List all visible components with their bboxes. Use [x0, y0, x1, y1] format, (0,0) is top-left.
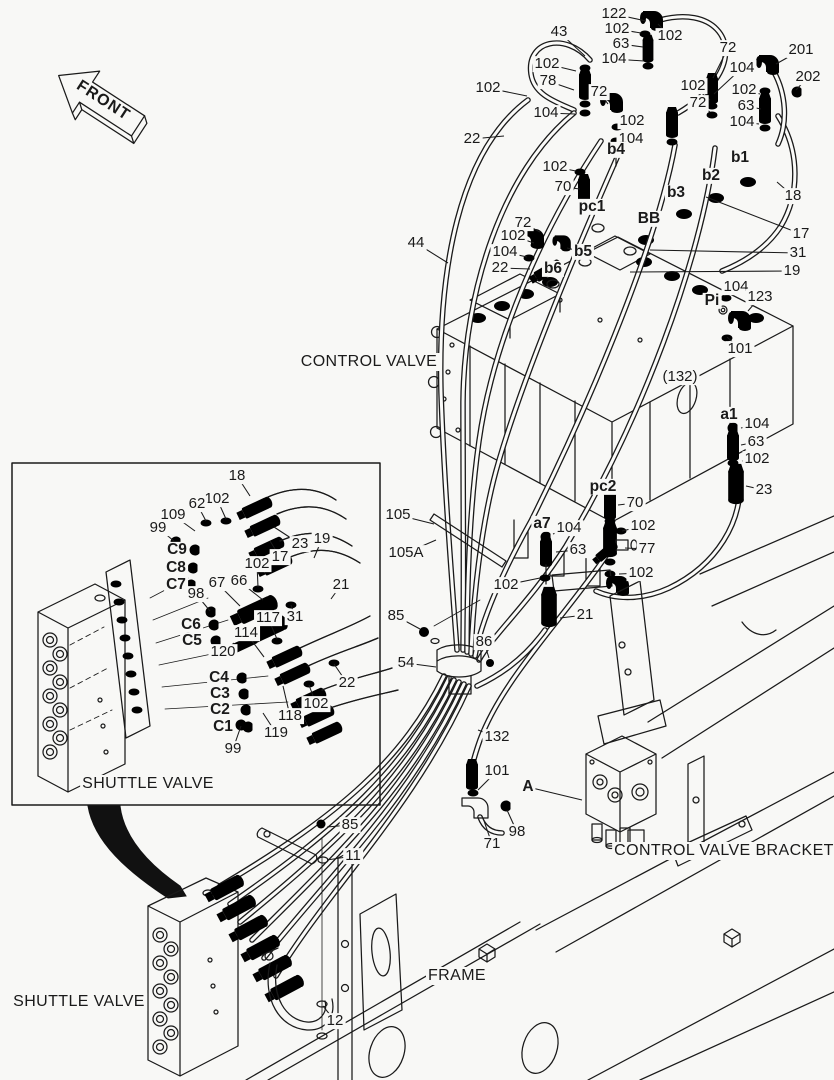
bottom-shuttle-valve: [148, 873, 306, 1076]
parts-diagram: FRONT 1221026310410243722011042021021027…: [0, 0, 834, 1080]
shuttle-valve-inset: [12, 463, 398, 805]
control-valve-bracket: [586, 516, 834, 866]
front-arrow: [43, 54, 156, 154]
inset-pointer-arrow: [88, 806, 186, 898]
diagram-artwork: [0, 0, 834, 1080]
frame: [246, 772, 834, 1080]
hoses: [220, 17, 795, 976]
